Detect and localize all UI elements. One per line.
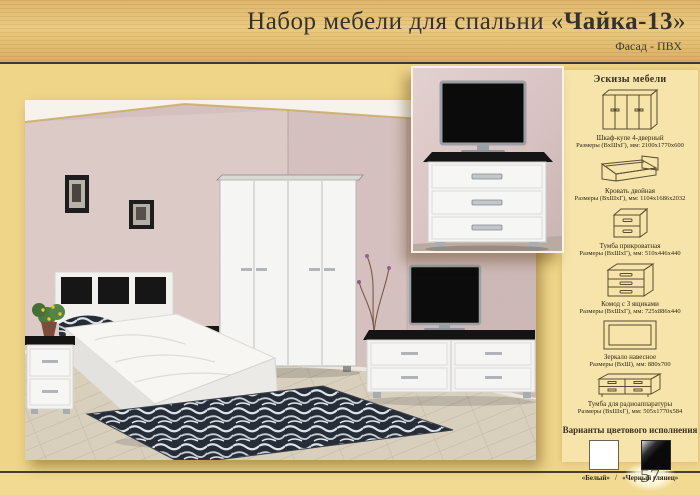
inset-tv bbox=[441, 82, 525, 155]
drawer-handle-icon bbox=[472, 200, 502, 205]
sketch-dimensions: Размеры (ВхШхГ), мм: 505х1770х584 bbox=[578, 408, 683, 416]
sketches-panel-header: Эскизы мебели bbox=[594, 74, 667, 85]
sketch-dimensions: Размеры (ВхШхГ), мм: 510х446х440 bbox=[579, 250, 680, 258]
picture-frame-left bbox=[65, 175, 89, 213]
white-color-swatch bbox=[589, 440, 619, 470]
sketch-item-chest: Комод с 3 ящиками Размеры (ВхШхГ), мм: 7… bbox=[579, 261, 680, 316]
wardrobe-sketch-icon bbox=[599, 88, 661, 132]
facade-subtitle: Фасад - ПВХ bbox=[0, 39, 686, 54]
sketch-name: Шкаф-купе 4-дверный bbox=[596, 134, 663, 142]
title-quote-close: » bbox=[673, 8, 686, 35]
chest-sketch-icon bbox=[604, 261, 656, 298]
sketch-dimensions: Размеры (ВхШхГ), мм: 2100х1770х600 bbox=[576, 142, 684, 150]
chest-tv-inset-photo bbox=[411, 66, 564, 253]
drawer-handle-icon bbox=[485, 352, 502, 355]
sketch-name: Тумба прикроватная bbox=[600, 242, 661, 250]
color-separator: / bbox=[615, 473, 617, 482]
sketch-name: Зеркало навесное bbox=[604, 353, 656, 361]
drawer-handle-icon bbox=[472, 225, 502, 230]
sketch-item-nightstand: Тумба прикроватная Размеры (ВхШхГ), мм: … bbox=[579, 206, 680, 258]
color-swatch-labels: «Белый» / «Черный глянец» bbox=[582, 473, 679, 482]
white-color-label: «Белый» bbox=[582, 474, 610, 482]
sketch-dimensions: Размеры (ВхШхГ), мм: 1104х1686х2032 bbox=[575, 195, 686, 203]
chest-tv-illustration bbox=[413, 68, 562, 251]
sketch-item-tv-stand: Тумба для радиоаппаратуры Размеры (ВхШхГ… bbox=[578, 372, 683, 416]
wardrobe-handle-icon bbox=[256, 268, 267, 271]
drawer-handle-icon bbox=[42, 360, 58, 363]
sketches-panel: Эскизы мебели Шкаф-купе 4-дверный Размер… bbox=[562, 70, 698, 462]
wardrobe-handle-icon bbox=[324, 268, 335, 271]
wardrobe-handle-icon bbox=[241, 268, 252, 271]
tv bbox=[410, 266, 480, 332]
drawer-handle-icon bbox=[485, 376, 502, 379]
nightstand-sketch-icon bbox=[610, 206, 650, 240]
black-gloss-color-swatch bbox=[641, 440, 671, 470]
tv-stand-sketch-icon bbox=[597, 372, 663, 398]
title-prefix: Набор мебели для спальни bbox=[247, 8, 551, 35]
sketch-item-wardrobe: Шкаф-купе 4-дверный Размеры (ВхШхГ), мм:… bbox=[576, 88, 684, 150]
sketch-name: Кровать двойная bbox=[605, 187, 655, 195]
bed-sketch-icon bbox=[596, 153, 664, 185]
page-title: Набор мебели для спальни «Чайка-13» bbox=[0, 7, 686, 37]
drawer-handle-icon bbox=[401, 376, 418, 379]
sketch-item-bed: Кровать двойная Размеры (ВхШхГ), мм: 110… bbox=[575, 153, 686, 203]
sketch-dimensions: Размеры (ВхШ), мм: 880х700 bbox=[589, 361, 670, 369]
color-options-header: Варианты цветового исполнения bbox=[563, 425, 698, 435]
title-quote-open: « bbox=[551, 8, 564, 35]
sketch-name: Тумба для радиоаппаратуры bbox=[588, 400, 672, 408]
sketch-item-mirror: Зеркало навесное Размеры (ВхШ), мм: 880х… bbox=[589, 319, 670, 369]
color-swatches bbox=[589, 440, 671, 470]
page-header: Набор мебели для спальни «Чайка-13» Фаса… bbox=[0, 0, 700, 62]
wardrobe-handle-icon bbox=[309, 268, 320, 271]
title-set-name: Чайка-13 bbox=[564, 8, 673, 35]
header-divider-line bbox=[0, 62, 700, 64]
mirror-sketch-icon bbox=[602, 319, 658, 351]
drawer-handle-icon bbox=[401, 352, 418, 355]
sketch-dimensions: Размеры (ВхШхГ), мм: 725х886х440 bbox=[579, 308, 680, 316]
drawer-handle-icon bbox=[472, 174, 502, 179]
picture-frame-right bbox=[129, 200, 154, 229]
black-color-label: «Черный глянец» bbox=[622, 474, 678, 482]
sketch-name: Комод с 3 ящиками bbox=[601, 300, 659, 308]
drawer-handle-icon bbox=[42, 390, 58, 393]
inset-chest bbox=[423, 152, 553, 251]
